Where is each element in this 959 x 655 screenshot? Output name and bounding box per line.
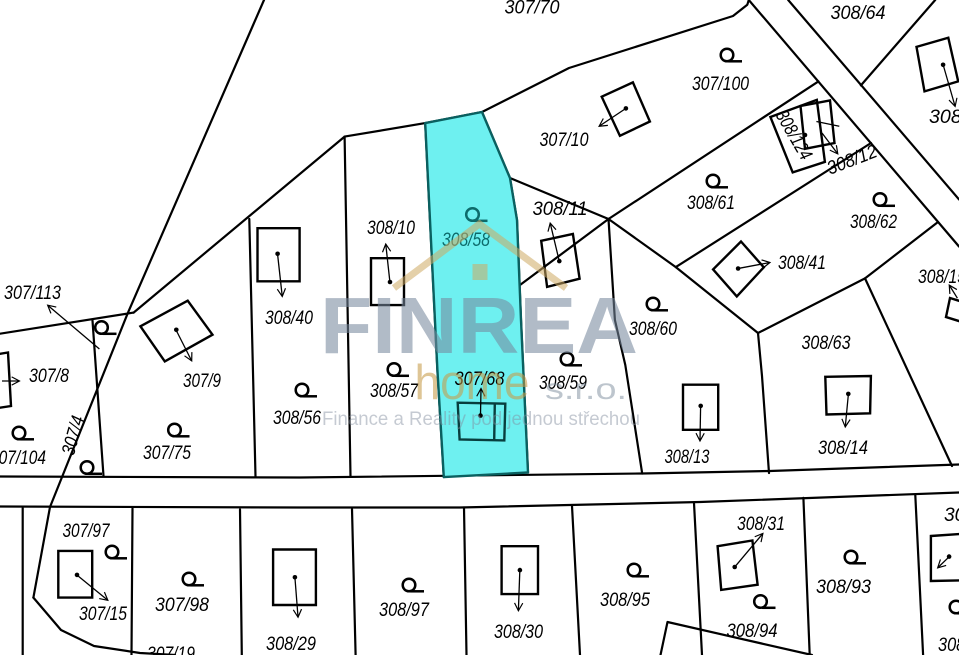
svg-text:307/8: 307/8 — [29, 366, 69, 387]
svg-text:307/19: 307/19 — [147, 644, 195, 655]
svg-text:308/57: 308/57 — [370, 381, 419, 402]
svg-text:308/15: 308/15 — [918, 267, 959, 288]
svg-text:Finance a Reality pod jednou s: Finance a Reality pod jednou střechou — [322, 409, 640, 430]
svg-text:308/93: 308/93 — [816, 577, 871, 598]
svg-text:307/113: 307/113 — [4, 283, 61, 304]
svg-text:307/75: 307/75 — [143, 443, 191, 464]
svg-text:308/31: 308/31 — [737, 514, 785, 535]
svg-text:308/29: 308/29 — [266, 634, 316, 655]
svg-text:307/15: 307/15 — [79, 604, 127, 625]
svg-text:308/95: 308/95 — [600, 590, 650, 611]
svg-text:308/13: 308/13 — [665, 447, 710, 468]
svg-text:308/63: 308/63 — [802, 333, 851, 354]
svg-text:308/10: 308/10 — [367, 218, 415, 239]
svg-text:308/98: 308/98 — [938, 635, 959, 655]
svg-text:307/9: 307/9 — [183, 371, 221, 392]
svg-text:308/41: 308/41 — [778, 253, 826, 274]
svg-text:308/30: 308/30 — [494, 622, 543, 643]
svg-text:308/94: 308/94 — [727, 621, 778, 642]
svg-text:307/100: 307/100 — [692, 74, 749, 95]
svg-text:308/64: 308/64 — [831, 3, 886, 24]
svg-text:308/56: 308/56 — [273, 408, 321, 429]
svg-text:308/14: 308/14 — [818, 438, 868, 459]
svg-text:home: home — [415, 356, 530, 410]
svg-text:s.r.o.: s.r.o. — [545, 373, 627, 406]
svg-text:308/96: 308/96 — [929, 107, 959, 128]
svg-text:307/10: 307/10 — [540, 130, 589, 151]
svg-text:307/98: 307/98 — [155, 595, 209, 616]
svg-text:307/97: 307/97 — [63, 521, 111, 542]
svg-text:308/62: 308/62 — [850, 212, 897, 233]
svg-text:307/70: 307/70 — [505, 0, 560, 19]
svg-text:308/9: 308/9 — [944, 505, 959, 526]
svg-text:307/104: 307/104 — [0, 448, 46, 469]
svg-text:308/97: 308/97 — [379, 600, 430, 621]
svg-text:308/40: 308/40 — [265, 308, 313, 329]
svg-text:308/11: 308/11 — [533, 199, 588, 220]
svg-text:308/61: 308/61 — [687, 193, 735, 214]
